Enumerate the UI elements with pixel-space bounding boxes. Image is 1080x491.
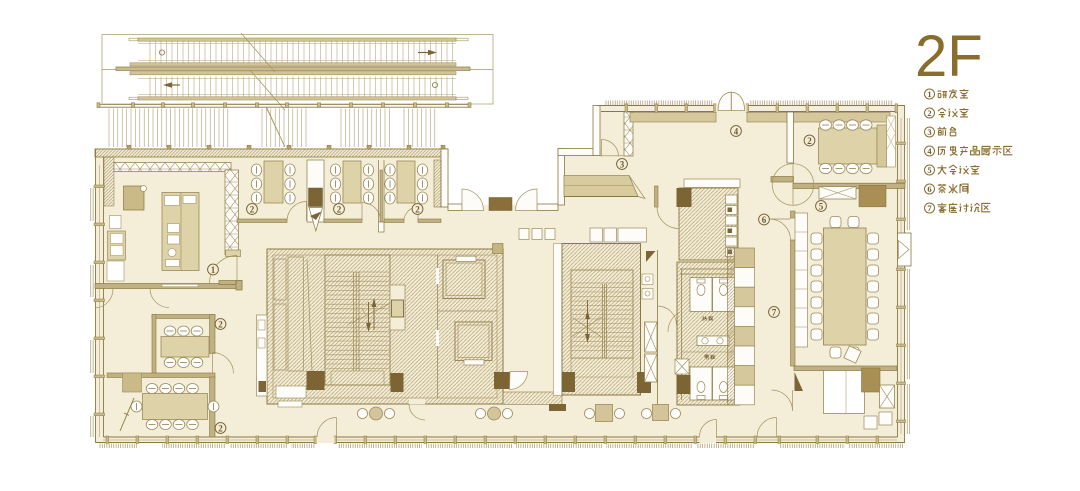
svg-text:3: 3 bbox=[620, 159, 625, 169]
svg-text:7: 7 bbox=[772, 307, 777, 317]
svg-text:2: 2 bbox=[250, 204, 255, 214]
svg-text:4: 4 bbox=[734, 126, 739, 136]
svg-text:2: 2 bbox=[927, 108, 931, 118]
svg-text:3: 3 bbox=[927, 127, 931, 137]
svg-text:2: 2 bbox=[807, 136, 812, 146]
svg-text:5: 5 bbox=[927, 165, 931, 175]
svg-text:2: 2 bbox=[337, 204, 342, 214]
svg-text:5: 5 bbox=[819, 201, 824, 211]
svg-text:2F: 2F bbox=[915, 24, 983, 89]
svg-text:6: 6 bbox=[927, 184, 931, 194]
svg-text:6: 6 bbox=[762, 215, 767, 225]
svg-text:2: 2 bbox=[415, 204, 420, 214]
svg-text:1: 1 bbox=[927, 89, 931, 99]
svg-text:2: 2 bbox=[218, 319, 223, 329]
svg-text:1: 1 bbox=[211, 265, 216, 275]
svg-text:2: 2 bbox=[218, 423, 223, 433]
